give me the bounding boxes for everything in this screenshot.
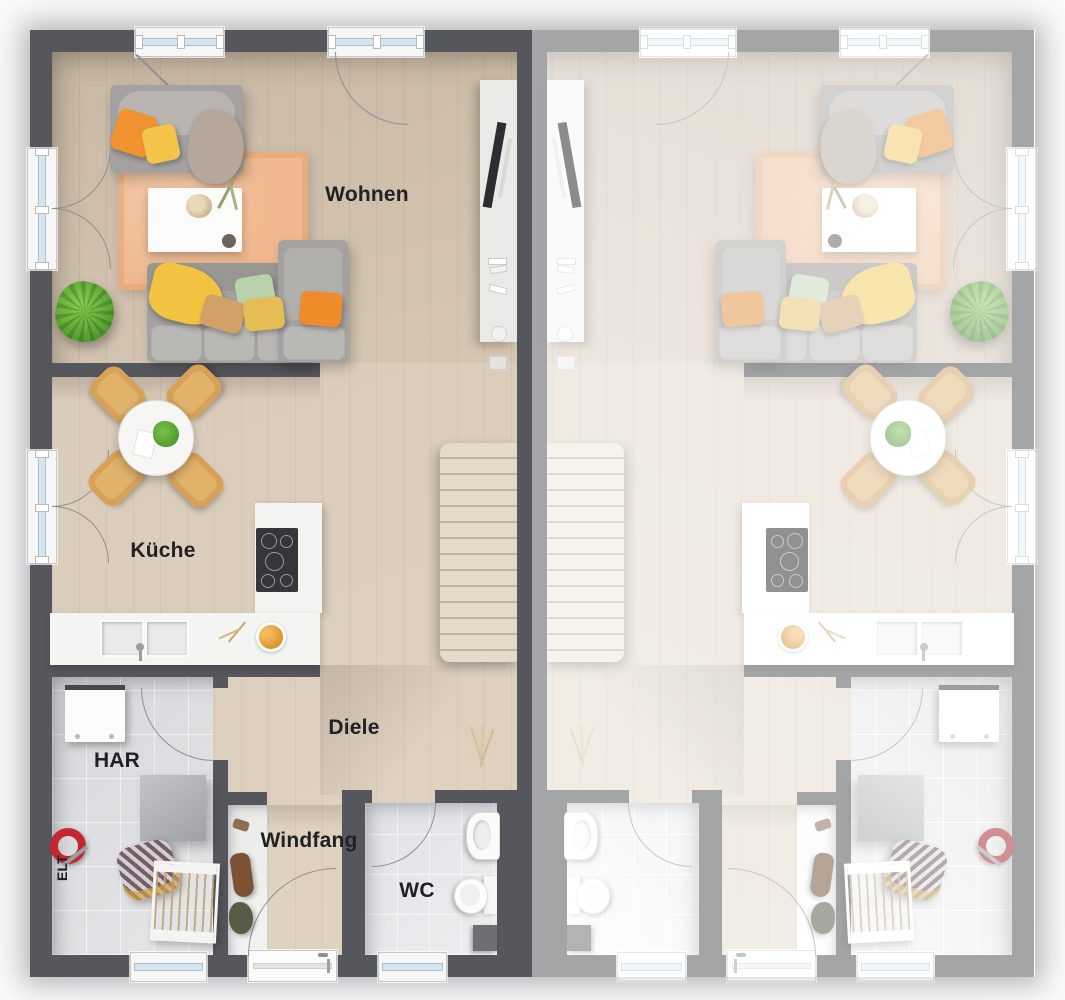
staircase (547, 443, 624, 662)
washer-knob (75, 734, 80, 739)
coffee-table (822, 188, 916, 252)
window-hinge (840, 35, 848, 49)
window-hinge (35, 148, 49, 156)
window-hinge (683, 35, 691, 49)
window-hinge (35, 206, 49, 214)
books (557, 258, 576, 265)
window-glass (621, 963, 682, 971)
door-handle (734, 959, 737, 973)
wall-exterior-top (30, 30, 532, 52)
washing-machine (939, 685, 999, 742)
candle (491, 326, 507, 342)
toilet-bowl (576, 878, 610, 914)
washbasin (564, 812, 598, 860)
window-hinge (416, 35, 424, 49)
dining-table (118, 400, 194, 476)
floorplan: Wohnen Küche Diele Windfang WC HAR ELT (30, 30, 1035, 977)
decor-plate (186, 194, 212, 218)
window-glass (134, 963, 203, 971)
books (488, 284, 507, 295)
window-bottom-wc (378, 952, 447, 982)
window-hinge (879, 35, 887, 49)
window-hinge (216, 35, 224, 49)
wall-wc-right (497, 790, 517, 955)
burner (771, 535, 784, 548)
burner (780, 552, 799, 571)
wc-cabinet (567, 925, 591, 951)
room-label-kueche: Küche (93, 537, 233, 565)
sink-basin (875, 620, 919, 657)
dining-table (870, 400, 946, 476)
window-bottom-har (857, 952, 934, 982)
wall-party (517, 30, 532, 977)
window-hinge (1015, 262, 1029, 270)
wall-kitchen-har (744, 665, 1012, 677)
decor-box (489, 356, 507, 370)
washer-knob (984, 734, 989, 739)
window-hinge (35, 450, 49, 458)
pillow-yellow (141, 123, 182, 165)
wall-exterior-top (532, 30, 1034, 52)
pillow-mustard (242, 296, 285, 332)
window-hinge (35, 556, 49, 564)
window-bottom-wc (617, 952, 686, 982)
window-hinge (35, 262, 49, 270)
wall-wc-top-left (342, 790, 372, 803)
basin-bowl (473, 820, 491, 850)
window-top-living-1 (135, 27, 224, 57)
toilet-seat (584, 884, 604, 906)
entrance-door-leaf (253, 963, 332, 969)
room-label-elt: ELT (32, 838, 92, 898)
pillow-orange-2 (299, 290, 344, 328)
drying-rack (844, 860, 914, 943)
fruit-bowl (256, 622, 286, 652)
sink-basin (145, 620, 189, 657)
sofa-seat-cushion (283, 326, 345, 360)
floorplan-image: Wohnen Küche Diele Windfang WC HAR ELT (0, 0, 1065, 1000)
window-top-living-1 (840, 27, 929, 57)
washer-panel (939, 685, 999, 690)
room-label-har: HAR (47, 747, 187, 775)
staircase (440, 443, 517, 662)
plant-sprig (826, 184, 835, 210)
decor-box (557, 356, 575, 370)
burner (265, 552, 284, 571)
window-hinge (640, 35, 648, 49)
wall-wc-top-right (435, 790, 497, 803)
faucet (139, 649, 142, 661)
table-plant (885, 421, 911, 447)
window-hinge (921, 35, 929, 49)
kitchen-counter (744, 613, 1014, 665)
burner (789, 574, 803, 588)
burner (787, 533, 803, 549)
kitchen-counter (50, 613, 320, 665)
washing-machine (65, 685, 125, 742)
washer-knob (109, 734, 114, 739)
faucet (922, 649, 925, 661)
fruit (781, 625, 805, 649)
room-label-windfang: Windfang (239, 827, 379, 855)
niche-plant (811, 902, 835, 934)
window-hinge (728, 35, 736, 49)
burner (280, 535, 293, 548)
window-hinge (35, 504, 49, 512)
washer-knob (950, 734, 955, 739)
door-handle (327, 959, 330, 973)
burner (771, 574, 784, 587)
burner (280, 574, 293, 587)
candle (557, 326, 573, 342)
fruit-bowl (778, 622, 808, 652)
books (556, 284, 575, 295)
fruit (259, 625, 283, 649)
wall-windfang-top (797, 792, 836, 805)
storage-box (858, 775, 924, 841)
books (490, 265, 508, 274)
burner (261, 533, 277, 549)
wall-har-right-upper (836, 677, 851, 688)
window-glass (861, 963, 930, 971)
decor-vase (828, 234, 842, 248)
wc-cabinet (473, 925, 497, 951)
window-hinge (1015, 504, 1029, 512)
window-hinge (1015, 450, 1029, 458)
tv-sideboard (480, 80, 517, 342)
sink-basin (920, 620, 964, 657)
pillow-mustard (778, 296, 821, 332)
plant-sprig (229, 184, 238, 210)
room-label-wc: WC (347, 877, 487, 905)
books (557, 265, 575, 274)
kitchen-island (742, 503, 809, 613)
entrance-door-leaf (732, 963, 811, 969)
window-hinge (373, 35, 381, 49)
window-hinge (1015, 206, 1029, 214)
washbasin (466, 812, 500, 860)
wall-kitchen-har (52, 665, 320, 677)
wall-wc-top-left (692, 790, 722, 803)
wall-windfang-top (228, 792, 267, 805)
window-hinge (177, 35, 185, 49)
coffee-table (148, 188, 242, 252)
pillow-orange-2 (721, 290, 766, 328)
wall-wc-left (699, 803, 722, 955)
room-label-wohnen: Wohnen (297, 181, 437, 209)
sofa-seat-cushion (862, 325, 913, 361)
basin-bowl (573, 820, 591, 850)
kitchen-island (255, 503, 322, 613)
window-bottom-har (130, 952, 207, 982)
cooktop (256, 528, 298, 592)
wall-har-right-upper (213, 677, 228, 688)
unit-left: Wohnen Küche Diele Windfang WC HAR ELT (30, 30, 532, 977)
storage-box (140, 775, 206, 841)
pampas-plant (458, 716, 500, 786)
window-hinge (1015, 148, 1029, 156)
window-glass (382, 963, 443, 971)
pampas-plant (564, 716, 606, 786)
window-hinge (1015, 556, 1029, 564)
books (488, 258, 507, 265)
sink-basin (100, 620, 144, 657)
table-plant (153, 421, 179, 447)
tv-sideboard (547, 80, 584, 342)
window-hinge (135, 35, 143, 49)
decor-vase (222, 234, 236, 248)
washer-panel (65, 685, 125, 690)
room-label-diele: Diele (284, 714, 424, 742)
sofa-seat-cushion (719, 326, 781, 360)
wall-wc-top-right (567, 790, 629, 803)
window-hinge (328, 35, 336, 49)
drying-rack (150, 860, 220, 943)
decor-plate (852, 194, 878, 218)
niche-plant (229, 902, 253, 934)
cooktop (766, 528, 808, 592)
wall-party (532, 30, 547, 977)
burner (261, 574, 275, 588)
sofa-seat-cushion (151, 325, 202, 361)
unit-right (532, 30, 1034, 977)
